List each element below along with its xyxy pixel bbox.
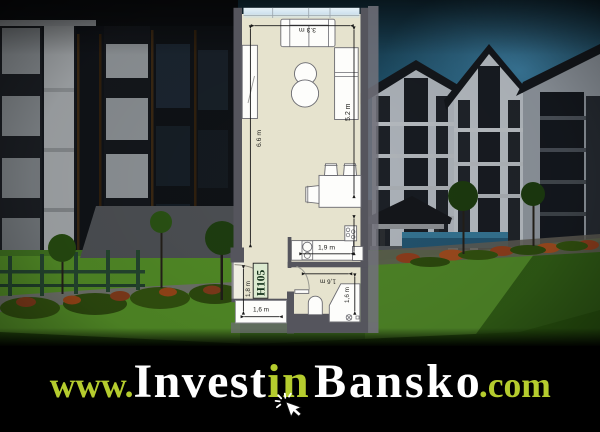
svg-text:1,8 m: 1,8 m — [245, 281, 252, 297]
svg-text:5.2 m: 5.2 m — [345, 103, 352, 121]
svg-text:3.3 m: 3.3 m — [299, 26, 316, 33]
svg-text:1,9 m: 1,9 m — [318, 244, 335, 251]
svg-text:6.6 m: 6.6 m — [256, 130, 263, 147]
svg-text:1,6 m: 1,6 m — [253, 307, 269, 314]
svg-text:H105: H105 — [256, 270, 268, 296]
svg-text:1,6 m: 1,6 m — [320, 278, 336, 285]
svg-text:1,6 m: 1,6 m — [344, 287, 351, 303]
